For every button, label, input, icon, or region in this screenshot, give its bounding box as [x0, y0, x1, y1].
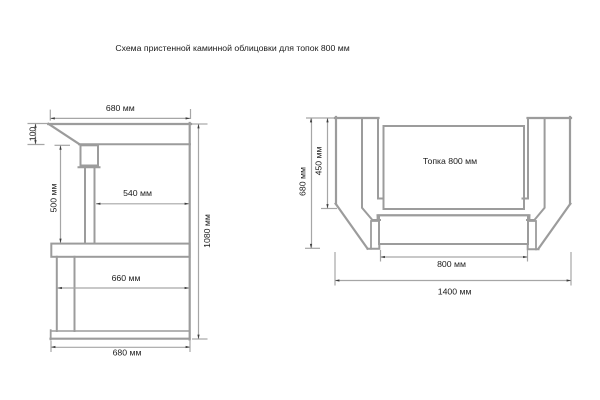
svg-text:660 мм: 660 мм	[112, 273, 141, 283]
svg-text:680 мм: 680 мм	[106, 103, 135, 113]
svg-text:680 мм: 680 мм	[113, 348, 142, 358]
svg-text:Схема пристенной каминной обли: Схема пристенной каминной облицовки для …	[115, 43, 349, 53]
svg-text:Топка 800 мм: Топка 800 мм	[423, 156, 477, 166]
svg-text:680 мм: 680 мм	[298, 167, 308, 196]
svg-text:100: 100	[27, 127, 37, 142]
svg-text:1400 мм: 1400 мм	[438, 287, 472, 297]
svg-text:450 мм: 450 мм	[313, 147, 323, 176]
svg-text:800 мм: 800 мм	[437, 259, 466, 269]
svg-text:1080 мм: 1080 мм	[202, 214, 212, 248]
svg-text:500 мм: 500 мм	[49, 184, 59, 213]
svg-text:540 мм: 540 мм	[123, 188, 152, 198]
